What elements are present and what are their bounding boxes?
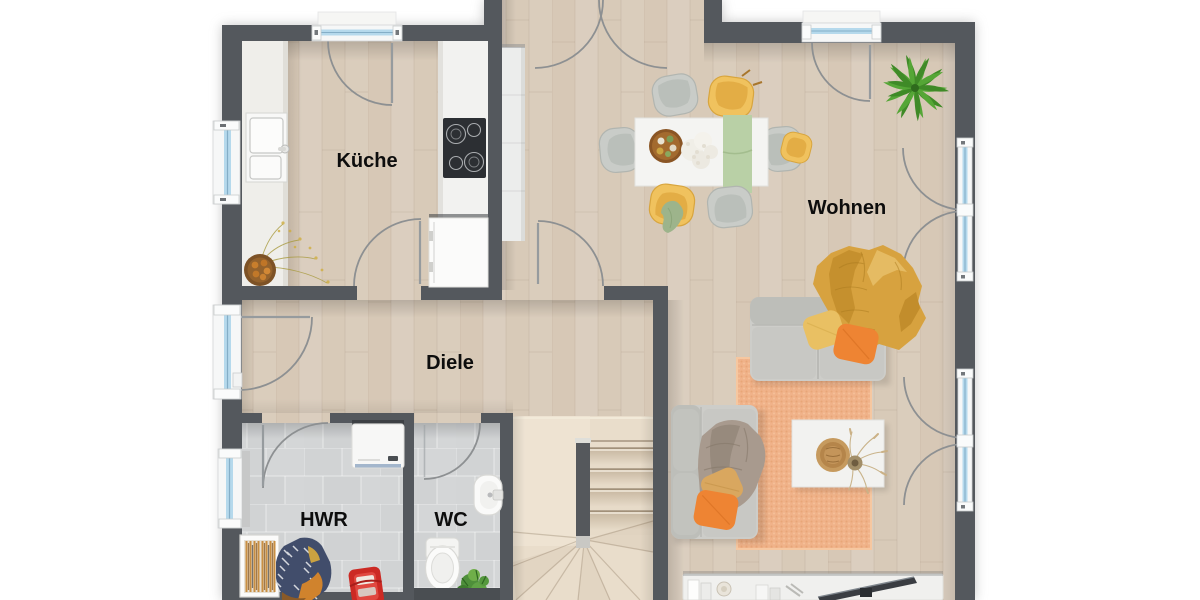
svg-text:Diele: Diele [426, 352, 474, 374]
svg-text:Küche: Küche [336, 150, 397, 172]
svg-text:Wohnen: Wohnen [808, 197, 887, 219]
svg-text:HWR: HWR [300, 509, 348, 531]
svg-text:WC: WC [434, 509, 467, 531]
